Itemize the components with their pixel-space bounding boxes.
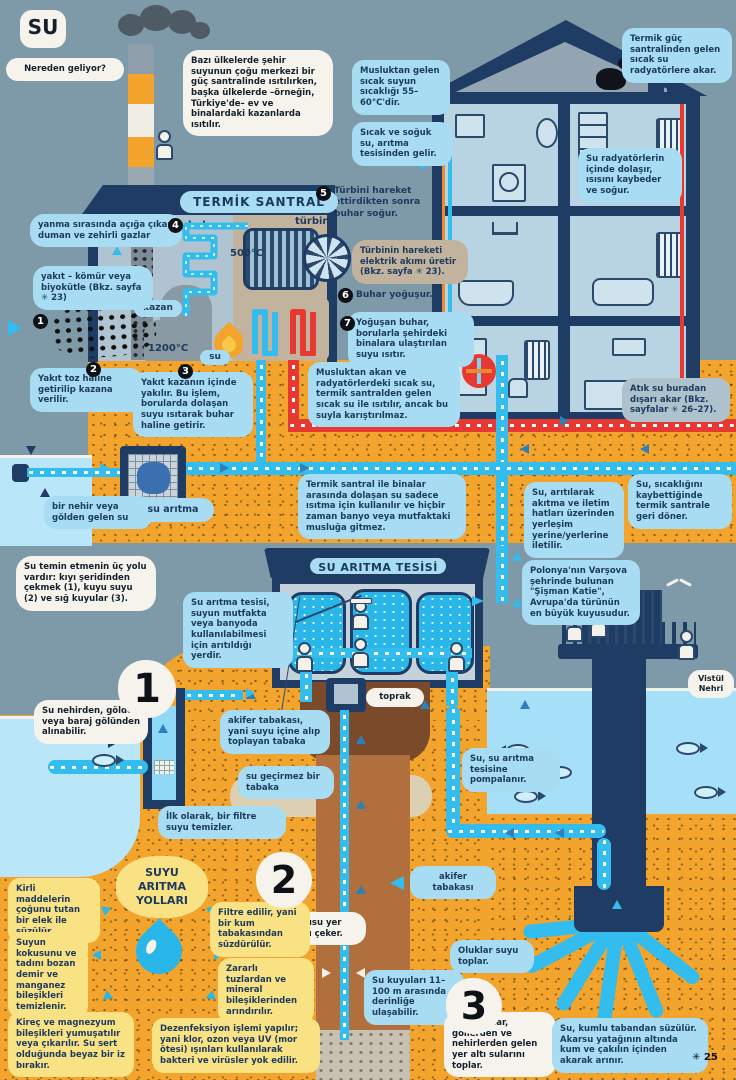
fuel-bubble: yakıt – kömür veya biyokütle (Bkz. sayfa… [33, 266, 153, 310]
fish-icon [92, 754, 116, 767]
no-mix-text: Musluktan akan ve radyatörlerdeki sıcak … [316, 368, 448, 421]
flow-arrow-icon [640, 444, 649, 454]
big-number-text: 1 [133, 666, 161, 712]
flow-arrow-icon [520, 444, 529, 454]
treatment-tank [416, 592, 474, 674]
step-badge-1: 1 [33, 314, 48, 329]
turbine-fan [303, 234, 351, 282]
step2-bubble: Yakıt toz haline getirilip kazana verili… [30, 368, 142, 412]
step6-text: Buhar yoğuşur. [356, 290, 433, 300]
page-number: ✳ 25 [692, 1052, 718, 1065]
impermeable-text: su geçirmez bir tabaka [246, 772, 320, 793]
tower-riser [597, 838, 611, 890]
question-bubble: Nereden geliyor? [6, 58, 124, 81]
gravel-base [316, 1030, 410, 1080]
chandelier [492, 222, 518, 235]
turbine-text: türbin [295, 216, 330, 227]
su-text: su [209, 352, 221, 362]
radiator-cool-text: Su radyatörlerin içinde dolaşır, ısısını… [586, 154, 664, 196]
purify-arrow-icon [92, 950, 101, 960]
purify-item-text: Dezenfeksiyon işlemi yapılır; yani klor,… [160, 1024, 298, 1066]
heating-only-text: Termik santral ile binalar arasında dola… [306, 480, 450, 533]
riser-arrow-icon [512, 552, 522, 561]
plant-intro-bubble: Su arıtma tesisi, suyun mutfakta veya ba… [183, 592, 293, 668]
purify-title-text: SUYU ARITMA YOLLARI [124, 866, 200, 909]
step5-text: Türbini hareket ettirdikten sonra buhar … [334, 186, 420, 219]
transfer-main [446, 824, 606, 838]
step-badge-2: 2 [86, 362, 101, 377]
step-number: 5 [320, 188, 327, 199]
plant-out-arrow-icon [472, 596, 484, 606]
step-badge-4: 4 [168, 218, 183, 233]
big-number-2: 2 [256, 852, 312, 908]
gutters-bubble: Oluklar suyu toplar. [450, 940, 534, 973]
label-turbine: türbin [295, 216, 330, 229]
step2-text: Yakıt toz haline getirilip kazana verili… [38, 374, 113, 405]
river-intake-pipe [27, 468, 125, 477]
transfer-arrow-icon [505, 828, 514, 838]
step-number: 6 [342, 290, 349, 301]
condensate-pipe-blue [256, 360, 266, 470]
fat-katie-bubble: Polonya'nın Varşova şehrinde bulunan "Şi… [522, 560, 640, 625]
big-number-1: 1 [118, 660, 176, 718]
pumped-text: Su, su arıtma tesisine pompalanır. [470, 754, 534, 785]
way1-text: Su nehirden, gölden veya baraj gölünden … [42, 706, 140, 737]
aquifer-bubble: akifer tabakası [410, 866, 496, 899]
smoke-puff [140, 5, 172, 31]
vistul-bubble: Vistül Nehri [688, 670, 734, 698]
river-source-text: bir nehir veya gölden gelen su [52, 502, 128, 523]
chimney [128, 44, 154, 194]
fish-icon [694, 786, 718, 799]
washing-machine-door [499, 172, 519, 192]
well-arrow-icon [356, 885, 366, 894]
flow-arrow-icon [300, 463, 309, 473]
smoke-puff [190, 22, 210, 39]
no-mix-bubble: Musluktan akan ve radyatörlerdeki sıcak … [308, 362, 460, 427]
distribution-text: Su, arıtılarak akıtma ve iletim hatları … [532, 488, 614, 551]
vistul-text: Vistül Nehri [698, 674, 724, 693]
step-badge-7: 7 [340, 316, 355, 331]
step7-bubble: Yoğuşan buhar, borularla şehirdeki binal… [348, 312, 474, 367]
flow-arrow-icon [100, 463, 109, 473]
return-cool-bubble: Su, sıcaklığını kaybettiğinde termik san… [628, 474, 732, 529]
waste-out-bubble: Atık su buradan dışarı akar (Bkz. sayfal… [622, 378, 730, 422]
bathtub [458, 280, 514, 306]
fish-icon [676, 742, 700, 755]
painter-figure [156, 130, 173, 160]
question-text: Nereden geliyor? [24, 64, 106, 74]
smoke-gases-bubble: yanma sırasında açığa çıkan duman ve zeh… [30, 214, 182, 247]
bath-cabinet [455, 114, 485, 138]
swimmer [678, 630, 695, 660]
treatment-plant-title: SU ARITMA TESİSİ [308, 556, 448, 576]
smoke-gases-text: yanma sırasında açığa çıkan duman ve zeh… [38, 220, 173, 241]
well-arrow-icon [356, 800, 366, 809]
step-badge-3: 3 [178, 364, 193, 379]
step-number: 1 [37, 316, 44, 327]
sofa [592, 278, 654, 306]
purify-title-blob: SUYU ARITMA YOLLARI [116, 856, 208, 918]
plant-title-badge: TERMİK SANTRAL [180, 191, 338, 213]
transfer-arrow-icon [555, 828, 564, 838]
uwell-out-pipe [185, 690, 243, 700]
intake-arrow-icon [26, 446, 36, 455]
flow-arrow-icon [220, 463, 229, 473]
step-badge-5: 5 [316, 186, 331, 201]
page-title: SU [20, 10, 66, 48]
step-number: 3 [182, 366, 189, 377]
uwell-water [152, 706, 176, 800]
intake-arrow-icon [40, 488, 50, 497]
step-number: 2 [90, 364, 97, 375]
radiator-in-bubble: Termik güç santralinden gelen sıcak su r… [622, 28, 732, 83]
depth-text: Su kuyuları 11–100 m arasında derinliğe … [372, 976, 446, 1018]
label-fire-temp: 1200°C [148, 343, 188, 356]
plant-worker [352, 638, 369, 668]
hot-supply-riser [288, 360, 299, 426]
well-arrow-icon [356, 735, 366, 744]
big-number-text: 2 [271, 858, 297, 902]
turbine-note-text: Türbinin hareketi elektrik akımı üretir … [360, 246, 456, 277]
aquifer-def-bubble: akifer tabakası, yani suyu içine alıp to… [220, 710, 330, 754]
three-ways-text: Su temin etmenin üç yolu vardır: kıyı şe… [24, 562, 147, 604]
clean-water-riser [496, 355, 508, 543]
first-filter-text: İlk olarak, bir filtre suyu temizler. [166, 812, 256, 833]
sand-filter-text: Su, kumlu tabandan süzülür. Akarsu yatağ… [560, 1024, 697, 1066]
purify-item-bubble: Kireç ve magnezyum bileşikleri yumuşatıl… [8, 1012, 134, 1077]
aquifer-def-text: akifer tabakası, yani suyu içine alıp to… [228, 716, 320, 747]
intro-text: Bazı ülkelerde şehir suyunun çoğu merkez… [191, 56, 317, 130]
plant-worker [296, 642, 313, 672]
page-number-text: ✳ 25 [692, 1052, 718, 1063]
uwell-wall-right [176, 688, 185, 806]
uwell-arrow-icon [158, 724, 168, 733]
return-cool-text: Su, sıcaklığını kaybettiğinde termik san… [636, 480, 710, 522]
gutters-text: Oluklar suyu toplar. [458, 946, 518, 967]
label-su: su [200, 350, 230, 365]
soil-text: toprak [379, 692, 411, 702]
pumped-bubble: Su, su arıtma tesisine pompalanır. [462, 748, 560, 792]
step3-text: Yakıt kazanın içinde yakılır. Bu işlem, … [141, 378, 237, 431]
radiator-cool-bubble: Su radyatörlerin içinde dolaşır, ısısını… [578, 148, 682, 203]
purify-item-bubble: Filtre edilir, yani bir kum tabakasından… [210, 902, 310, 957]
infiltration-arrow-icon [356, 968, 365, 978]
purify-item-text: Kireç ve magnezyum bileşikleri yumuşatıl… [16, 1018, 125, 1071]
intro-bubble: Bazı ülkelerde şehir suyunun çoğu merkez… [183, 50, 333, 136]
fisherman [352, 600, 369, 630]
uwell-out-arrow-icon [246, 688, 255, 698]
step-number: 7 [344, 318, 351, 329]
riser-arrow-icon [512, 598, 522, 607]
radiator-in-text: Termik güç santralinden gelen sıcak su r… [630, 34, 720, 76]
pump-cross2 [466, 369, 492, 373]
plant-title-text: TERMİK SANTRAL [193, 195, 325, 209]
infographic-poster: SU Nereden geliyor? Bazı ülkelerde şehir… [0, 0, 736, 1080]
uwell-filter [154, 760, 174, 774]
step7-text: Yoğuşan buhar, borularla şehirdeki binal… [356, 318, 447, 360]
step3-bubble: Yakıt kazanın içinde yakılır. Bu işlem, … [133, 372, 253, 437]
first-filter-bubble: İlk olarak, bir filtre suyu temizler. [158, 806, 286, 839]
distribution-bubble: Su, arıtılarak akıtma ve iletim hatları … [524, 482, 624, 558]
purify-item-bubble: Zararlı tuzlardan ve mineral bileşikleri… [218, 958, 314, 1023]
hot-pipe-red [680, 104, 684, 412]
fire-temp-text: 1200°C [148, 343, 188, 354]
plant-intro-text: Su arıtma tesisi, suyun mutfakta veya ba… [191, 598, 270, 661]
well-pipe [340, 710, 349, 1040]
seagull-icon [666, 576, 692, 588]
big-number-text: 3 [461, 984, 487, 1028]
step-badge-6: 6 [338, 288, 353, 303]
kitchen-hood [612, 338, 646, 356]
aquifer-arrow-icon [390, 876, 404, 890]
toilet [508, 378, 528, 398]
fish-icon [514, 790, 538, 803]
mirror [536, 118, 558, 148]
fuel-text: yakıt – kömür veya biyokütle (Bkz. sayfa… [41, 272, 141, 303]
purify-item-text: Suyun kokusunu ve tadını bozan demir ve … [16, 938, 76, 1012]
up-arrow-icon [112, 246, 122, 255]
treatment-plant-title-text: SU ARITMA TESİSİ [318, 561, 438, 574]
hot-cold-bubble: Sıcak ve soğuk su, arıtma tesisinden gel… [352, 122, 452, 166]
well-tower-base [574, 886, 664, 932]
three-ways-bubble: Su temin etmenin üç yolu vardır: kıyı şe… [16, 556, 156, 611]
purify-item-bubble: Dezenfeksiyon işlemi yapılır; yani klor,… [152, 1018, 320, 1073]
tap-temp-bubble: Musluktan gelen sıcak suyun sıcaklığı 55… [352, 60, 450, 115]
step5-label: Türbini hareket ettirdikten sonra buhar … [334, 186, 430, 220]
transfer-riser [446, 706, 460, 836]
well-tower-deck [558, 644, 698, 659]
fisherman-hat [350, 598, 372, 604]
condenser-coils [247, 302, 327, 356]
feed-arrow-icon [520, 700, 530, 709]
tower-up-arrow-icon [612, 900, 622, 909]
sand-filter-bubble: Su, kumlu tabandan süzülür. Akarsu yatağ… [552, 1018, 708, 1073]
page-title-text: SU [28, 15, 59, 39]
aquifer-text: akifer tabakası [433, 872, 474, 893]
turbine-note-bubble: Türbinin hareketi elektrik akımı üretir … [352, 240, 468, 284]
treatment-text: su arıtma [148, 504, 199, 515]
fat-katie-text: Polonya'nın Varşova şehrinde bulunan "Şi… [530, 566, 630, 619]
waste-out-text: Atık su buradan dışarı akar (Bkz. sayfal… [630, 384, 716, 415]
purify-item-text: Zararlı tuzlardan ve mineral bileşikleri… [226, 964, 297, 1017]
purify-item-text: Filtre edilir, yani bir kum tabakasından… [218, 908, 297, 950]
hot-cold-text: Sıcak ve soğuk su, arıtma tesisinden gel… [360, 128, 437, 159]
feed-arrow-icon [8, 320, 22, 336]
step-number: 4 [172, 220, 179, 231]
radiator [524, 340, 550, 380]
clean-water-riser-2 [496, 543, 508, 603]
purify-item-text: Kirli maddelerin çoğunu tutan bir elek i… [16, 884, 80, 937]
flow-arrow-icon [560, 416, 569, 426]
purify-item-bubble: Suyun kokusunu ve tadını bozan demir ve … [8, 932, 88, 1018]
big-number-3: 3 [446, 978, 502, 1034]
heating-only-bubble: Termik santral ile binalar arasında dola… [298, 474, 466, 539]
soil-label: toprak [366, 688, 424, 707]
tap-temp-text: Musluktan gelen sıcak suyun sıcaklığı 55… [360, 66, 440, 108]
treatment-label-bubble: su arıtma [132, 498, 214, 522]
plant-worker [448, 642, 465, 672]
wellhead-window [334, 684, 358, 704]
infiltration-arrow-icon [322, 968, 331, 978]
impermeable-bubble: su geçirmez bir tabaka [238, 766, 334, 799]
small-treatment-core [137, 462, 170, 494]
